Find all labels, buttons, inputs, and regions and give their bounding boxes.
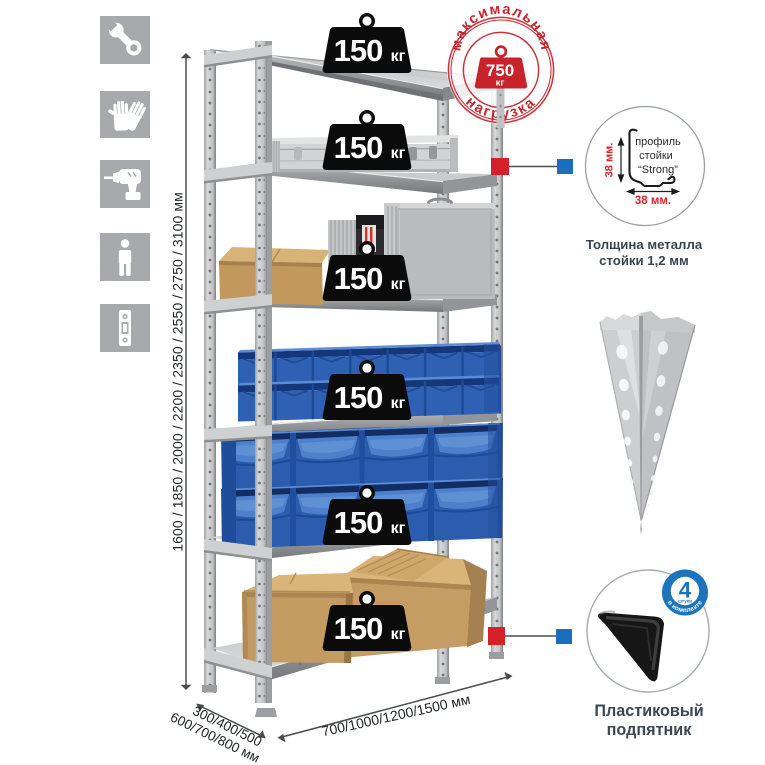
svg-text:кг: кг [496, 78, 505, 89]
svg-text:штуки: штуки [678, 599, 692, 604]
svg-text:38 мм.: 38 мм. [604, 143, 616, 178]
svg-text:1600 / 1850 / 2000 / 2200 / 23: 1600 / 1850 / 2000 / 2200 / 2350 / 2550 … [170, 192, 186, 552]
svg-text:Толщина металла: Толщина металла [586, 237, 703, 252]
svg-text:стойки: стойки [639, 150, 673, 162]
svg-text:профиль: профиль [635, 136, 681, 148]
svg-text:“Strong”: “Strong” [638, 164, 678, 176]
svg-text:38 мм.: 38 мм. [635, 195, 671, 207]
svg-text:Пластиковый: Пластиковый [594, 702, 703, 720]
svg-text:стойки 1,2 мм: стойки 1,2 мм [599, 253, 689, 268]
svg-text:подпятник: подпятник [607, 721, 693, 739]
